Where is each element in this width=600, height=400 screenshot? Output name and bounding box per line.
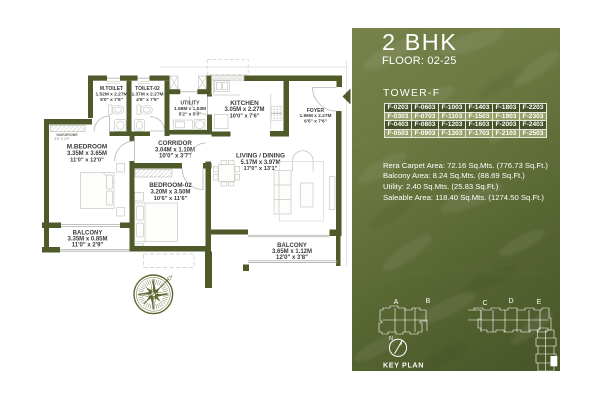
svg-text:M.BEDROOM: M.BEDROOM bbox=[67, 144, 107, 151]
svg-text:TOILET-02: TOILET-02 bbox=[135, 86, 160, 92]
svg-text:BALCONY: BALCONY bbox=[277, 243, 307, 249]
svg-text:FOYER: FOYER bbox=[307, 108, 325, 114]
svg-text:10'0" x 3'7": 10'0" x 3'7" bbox=[159, 154, 191, 160]
svg-text:BEDROOM-02: BEDROOM-02 bbox=[149, 182, 192, 189]
svg-text:11'0" x 2'9": 11'0" x 2'9" bbox=[72, 243, 104, 249]
svg-text:11'0" x 12'0": 11'0" x 12'0" bbox=[70, 157, 104, 163]
svg-text:KEY PLAN: KEY PLAN bbox=[383, 361, 424, 370]
svg-text:4'6" x 7'6": 4'6" x 7'6" bbox=[136, 97, 159, 103]
svg-text:5'2" x 5'0": 5'2" x 5'0" bbox=[179, 112, 202, 118]
svg-text:5'0" x 7'6": 5'0" x 7'6" bbox=[100, 97, 123, 103]
svg-text:1.96M x 2.27M: 1.96M x 2.27M bbox=[300, 113, 332, 119]
svg-text:3.65M x 1.12M: 3.65M x 1.12M bbox=[272, 249, 312, 255]
svg-text:LIVING / DINING: LIVING / DINING bbox=[236, 153, 285, 160]
svg-text:A: A bbox=[394, 299, 399, 306]
svg-text:1.37M x 2.27M: 1.37M x 2.27M bbox=[132, 92, 164, 98]
svg-text:BALCONY: BALCONY bbox=[73, 231, 103, 237]
svg-text:M.TOILET: M.TOILET bbox=[100, 86, 123, 92]
svg-text:10'0" x 7'6": 10'0" x 7'6" bbox=[230, 114, 260, 120]
svg-text:1.52M x 2.27M: 1.52M x 2.27M bbox=[96, 92, 128, 98]
svg-text:5'6" X 2'9": 5'6" X 2'9" bbox=[54, 137, 70, 141]
svg-text:N: N bbox=[389, 336, 393, 342]
svg-text:6'5" x 7'6": 6'5" x 7'6" bbox=[304, 118, 327, 124]
svg-text:3.05M x 2.27M: 3.05M x 2.27M bbox=[224, 107, 264, 113]
svg-text:3.35M x 3.65M: 3.35M x 3.65M bbox=[67, 151, 107, 157]
svg-text:3.04M x 1.10M: 3.04M x 1.10M bbox=[155, 147, 195, 153]
svg-text:17'0" x 13'1": 17'0" x 13'1" bbox=[243, 166, 277, 172]
svg-text:3.20M x 3.50M: 3.20M x 3.50M bbox=[150, 190, 190, 196]
svg-text:D: D bbox=[508, 298, 513, 305]
svg-text:12'0" x 3'8": 12'0" x 3'8" bbox=[276, 255, 308, 261]
svg-text:3.35M x 0.85M: 3.35M x 0.85M bbox=[67, 237, 107, 243]
svg-text:B: B bbox=[426, 298, 431, 305]
svg-text:C: C bbox=[482, 300, 487, 307]
svg-text:CORRIDOR: CORRIDOR bbox=[158, 140, 192, 147]
svg-text:1.58M x 1.53M: 1.58M x 1.53M bbox=[174, 106, 206, 112]
svg-text:10'6" x 11'6": 10'6" x 11'6" bbox=[154, 196, 188, 202]
svg-text:KITCHEN: KITCHEN bbox=[230, 100, 259, 107]
svg-text:5.17M x 3.97M: 5.17M x 3.97M bbox=[240, 160, 280, 166]
svg-text:E: E bbox=[537, 299, 542, 306]
